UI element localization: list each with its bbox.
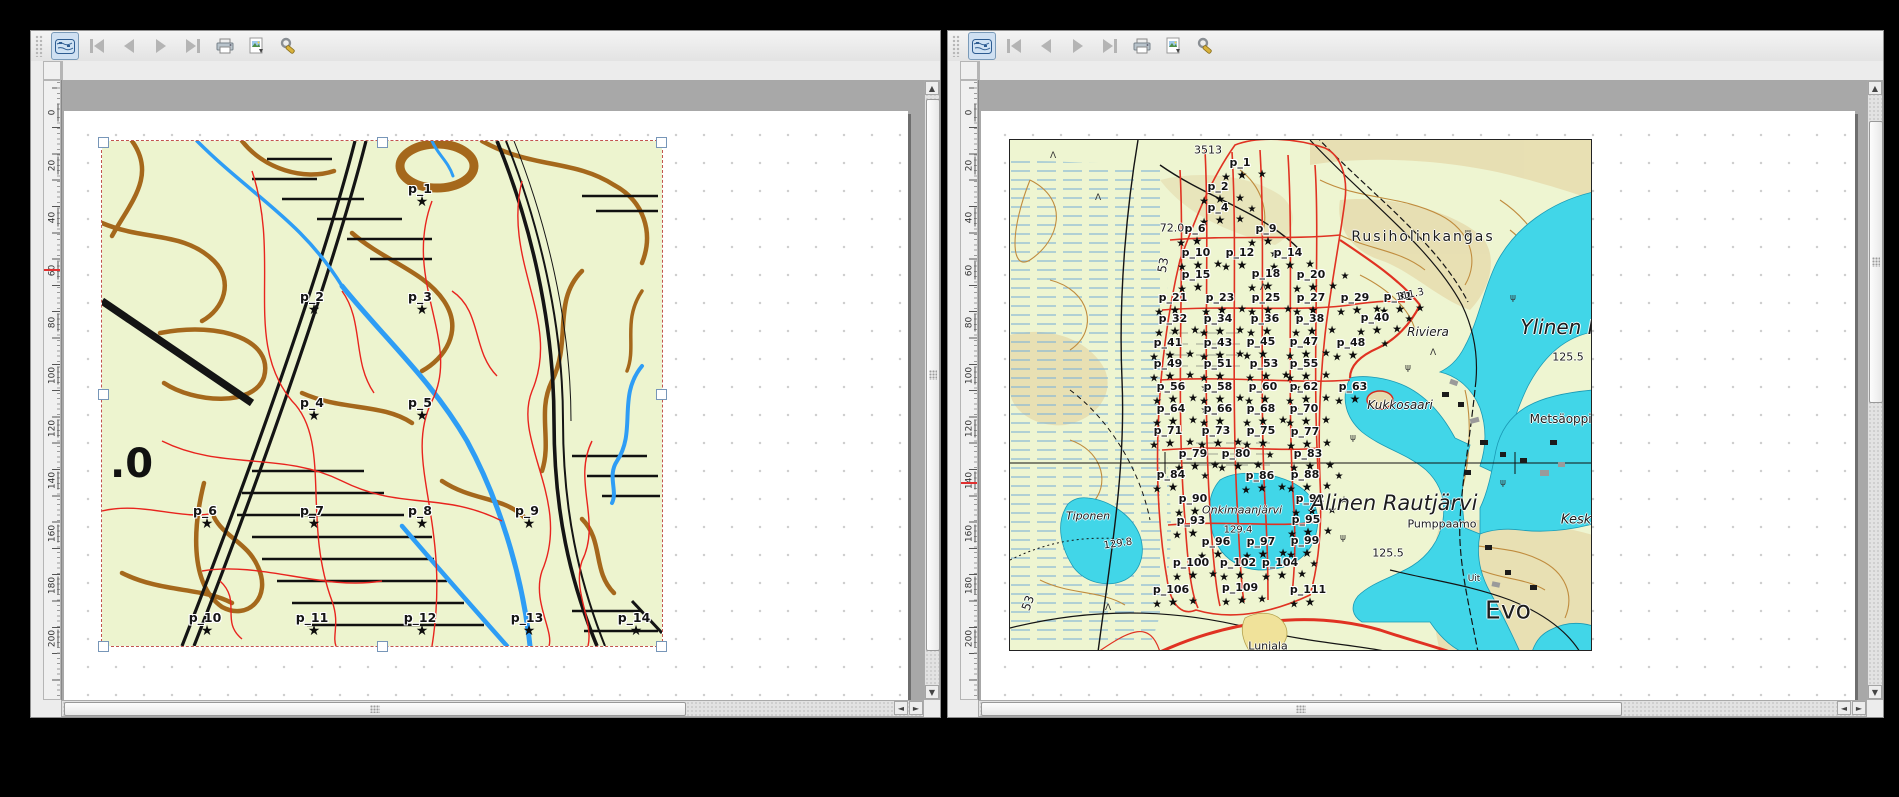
- point-star-marker: ★: [1201, 472, 1210, 482]
- map-place-label: 125.5: [1552, 351, 1584, 364]
- horizontal-scrollbar[interactable]: ◄ ►: [61, 700, 924, 717]
- horizontal-scrollbar[interactable]: ◄ ►: [978, 700, 1867, 717]
- point-star-marker: ★: [1321, 415, 1331, 426]
- vertical-scrollbar-thumb[interactable]: [926, 99, 940, 651]
- point-star-marker: ★: [1185, 349, 1195, 360]
- map-place-label: Onkimaanjärvi: [1202, 504, 1282, 517]
- v-ruler-tick: 160: [965, 524, 976, 542]
- page-settings-icon[interactable]: [275, 32, 303, 60]
- horizontal-ruler: 0204060801001201401601802002202402602803…: [61, 61, 63, 80]
- map-place-label: Riviera: [1407, 325, 1449, 339]
- map-place-label: Keskin: [1561, 513, 1592, 528]
- map-place-label: 72.0: [1160, 222, 1185, 235]
- map-place-label: Tiponen: [1066, 510, 1110, 523]
- vertical-scrollbar-thumb[interactable]: [1869, 121, 1883, 403]
- v-ruler-tick: 160: [48, 524, 59, 542]
- point-star-marker: ★: [1233, 460, 1244, 472]
- point-star-marker: ★: [523, 517, 536, 531]
- point-star-marker: ★: [1415, 303, 1425, 314]
- point-star-marker: ★: [1188, 393, 1198, 404]
- horizontal-scrollbar-thumb[interactable]: [64, 702, 686, 716]
- resize-handle-sw[interactable]: [98, 641, 109, 652]
- map-item[interactable]: p_1★p_2★p_3★p_4★p_5★p_6★p_7★p_8★p_9★p_10…: [102, 141, 662, 646]
- map-place-label: Lunjala: [1248, 640, 1287, 652]
- resize-handle-w[interactable]: [98, 389, 109, 400]
- export-image-icon[interactable]: [243, 32, 271, 60]
- composer-window-right: 0204060801001201401601802002202402602803…: [947, 30, 1884, 718]
- v-ruler-tick: 120: [965, 419, 976, 437]
- point-star-marker: ★: [1302, 547, 1313, 559]
- horizontal-scrollbar-thumb[interactable]: [981, 702, 1622, 716]
- v-ruler-tick: 60: [965, 261, 976, 279]
- point-star-marker: ★: [1168, 481, 1179, 493]
- point-star-marker: ★: [1289, 599, 1299, 610]
- resize-handle-n[interactable]: [377, 137, 388, 148]
- toolbar-drag-handle[interactable]: [952, 35, 960, 57]
- point-star-marker: ★: [1235, 569, 1246, 581]
- ruler-corner: [43, 61, 61, 80]
- point-star-marker: ★: [416, 517, 429, 531]
- composer-window-left: 0204060801001201401601802002202402602803…: [30, 30, 941, 718]
- v-ruler-tick: 100: [965, 367, 976, 385]
- point-star-marker: ★: [1217, 463, 1227, 474]
- v-ruler-tick: 200: [965, 630, 976, 648]
- point-star-marker: ★: [1168, 596, 1179, 608]
- v-ruler-tick: 0: [965, 104, 976, 122]
- v-ruler-tick: 100: [48, 367, 59, 385]
- point-star-marker: ★: [1185, 370, 1195, 381]
- point-star-marker: ★: [1235, 193, 1245, 204]
- v-ruler-tick: 180: [48, 577, 59, 595]
- point-star-marker: ★: [1172, 530, 1182, 541]
- point-star-marker: ★: [1172, 572, 1182, 583]
- point-star-marker: ★: [1277, 569, 1288, 581]
- paper-page: ΛΛΛ ΛΛψ ψψψ ψψψ p_1★★★p_2★★★p_4★★★★p_6★★…: [981, 111, 1855, 700]
- point-star-marker: ★: [1257, 594, 1267, 605]
- point-star-marker: ★: [1257, 169, 1267, 180]
- point-star-marker: ★: [1235, 325, 1245, 336]
- point-star-marker: ★: [1341, 272, 1350, 282]
- resize-handle-se[interactable]: [656, 641, 667, 652]
- go-last-icon[interactable]: [1096, 32, 1124, 60]
- v-ruler-tick: 80: [965, 314, 976, 332]
- point-star-marker: ★: [1328, 281, 1338, 292]
- point-star-marker: ★: [1237, 594, 1248, 606]
- point-star-marker: ★: [1325, 460, 1335, 471]
- point-star-marker: ★: [1336, 307, 1346, 318]
- sample-points-overlay: p_1★p_2★p_3★p_4★p_5★p_6★p_7★p_8★p_9★p_10…: [102, 141, 662, 646]
- scroll-up-icon[interactable]: ▲: [925, 81, 939, 95]
- v-ruler-tick: 200: [48, 630, 59, 648]
- vertical-scrollbar[interactable]: ▲ ▼: [1867, 80, 1883, 700]
- map-place-label: 129.4: [1224, 525, 1253, 536]
- scroll-right-icon[interactable]: ►: [909, 701, 923, 715]
- point-star-marker: ★: [1305, 596, 1316, 608]
- map-edge-label: .0: [110, 441, 153, 487]
- point-star-marker: ★: [1208, 569, 1218, 580]
- map-place-label: 125.5: [1372, 547, 1404, 560]
- point-star-marker: ★: [1321, 370, 1331, 381]
- ruler-corner: [960, 61, 978, 80]
- print-icon[interactable]: [211, 32, 239, 60]
- scroll-down-icon[interactable]: ▼: [925, 685, 939, 699]
- v-ruler-tick: 20: [965, 156, 976, 174]
- point-star-marker: ★: [1321, 393, 1331, 404]
- composer-map-icon[interactable]: [51, 32, 79, 60]
- point-star-marker: ★: [1350, 393, 1361, 405]
- point-star-marker: ★: [201, 624, 214, 638]
- map-place-label: Metsäoppila: [1530, 412, 1592, 426]
- paper-page: p_1★p_2★p_3★p_4★p_5★p_6★p_7★p_8★p_9★p_10…: [64, 111, 908, 700]
- point-star-marker: ★: [1152, 484, 1162, 495]
- go-next-icon[interactable]: [147, 32, 175, 60]
- point-star-marker: ★: [1322, 438, 1332, 449]
- map-place-label: 53: [1155, 256, 1171, 273]
- point-star-marker: ★: [1297, 569, 1307, 580]
- point-star-marker: ★: [308, 409, 321, 423]
- resize-handle-s[interactable]: [377, 641, 388, 652]
- point-star-marker: ★: [1323, 526, 1333, 537]
- point-star-marker: ★: [416, 303, 429, 317]
- point-star-marker: ★: [1241, 485, 1251, 496]
- go-first-icon[interactable]: [1000, 32, 1028, 60]
- point-star-marker: ★: [1332, 352, 1342, 363]
- resize-handle-e[interactable]: [656, 389, 667, 400]
- point-star-marker: ★: [1190, 460, 1201, 472]
- v-ruler-tick: 0: [48, 104, 59, 122]
- point-star-marker: ★: [1193, 281, 1204, 293]
- toolbar-drag-handle[interactable]: [35, 35, 43, 57]
- map-place-label: Uit: [1468, 574, 1481, 584]
- scroll-down-icon[interactable]: ▼: [1868, 685, 1882, 699]
- map-place-label: Pumppaamo: [1407, 518, 1476, 531]
- scroll-up-icon[interactable]: ▲: [1868, 81, 1882, 95]
- resize-handle-ne[interactable]: [656, 137, 667, 148]
- point-star-marker: ★: [523, 624, 536, 638]
- map-place-label: 3513: [1194, 144, 1222, 157]
- point-star-marker: ★: [1188, 569, 1199, 581]
- point-star-marker: ★: [1310, 560, 1319, 570]
- point-star-marker: ★: [1215, 214, 1226, 226]
- desktop: 0204060801001201401601802002202402602803…: [0, 0, 1899, 797]
- map-place-label: 53: [1019, 593, 1037, 612]
- point-star-marker: ★: [1149, 440, 1159, 451]
- point-star-marker: ★: [1221, 262, 1231, 273]
- v-ruler-tick: 180: [965, 577, 976, 595]
- vertical-ruler: 020406080100120140160180200: [43, 80, 61, 700]
- point-star-marker: ★: [1165, 437, 1176, 449]
- composition-canvas[interactable]: ΛΛΛ ΛΛψ ψψψ ψψψ p_1★★★p_2★★★p_4★★★★p_6★★…: [978, 80, 1867, 700]
- map-place-label: Kukkosaari: [1367, 398, 1433, 412]
- point-star-marker: ★: [1335, 472, 1344, 482]
- map-place-label: Rusiholinkangas: [1351, 229, 1494, 245]
- cursor-position-marker: [44, 269, 60, 271]
- point-star-marker: ★: [1285, 259, 1296, 271]
- scroll-left-icon[interactable]: ◄: [1837, 701, 1851, 715]
- composer-toolbar: [948, 31, 1883, 61]
- point-star-marker: ★: [1392, 324, 1402, 335]
- point-star-marker: ★: [308, 624, 321, 638]
- point-star-marker: ★: [1327, 325, 1337, 336]
- point-star-marker: ★: [1263, 235, 1274, 247]
- point-star-marker: ★: [1322, 481, 1332, 492]
- map-place-label: Evo: [1485, 596, 1531, 625]
- point-star-marker: ★: [1405, 315, 1414, 325]
- scroll-right-icon[interactable]: ►: [1852, 701, 1866, 715]
- point-star-marker: ★: [1185, 437, 1195, 448]
- point-star-marker: ★: [308, 303, 321, 317]
- v-ruler-tick: 20: [48, 156, 59, 174]
- export-image-icon[interactable]: [1160, 32, 1188, 60]
- point-star-marker: ★: [1381, 340, 1390, 350]
- point-star-marker: ★: [308, 517, 321, 531]
- point-star-marker: ★: [416, 624, 429, 638]
- point-star-marker: ★: [1221, 597, 1231, 608]
- v-ruler-tick: 40: [48, 209, 59, 227]
- sample-points-overlay: p_1★★★p_2★★★p_4★★★★p_6★★p_9★★p_10★★★p_12…: [1010, 140, 1591, 650]
- page-settings-icon[interactable]: [1192, 32, 1220, 60]
- point-star-marker: ★: [630, 624, 643, 638]
- go-previous-icon[interactable]: [115, 32, 143, 60]
- vertical-ruler: 020406080100120140160180200: [960, 80, 978, 700]
- scroll-left-icon[interactable]: ◄: [894, 701, 908, 715]
- point-star-marker: ★: [1188, 527, 1199, 539]
- go-first-icon[interactable]: [83, 32, 111, 60]
- composer-toolbar: [31, 31, 940, 61]
- point-star-marker: ★: [1237, 169, 1248, 181]
- point-star-marker: ★: [1261, 572, 1271, 583]
- composer-map-icon[interactable]: [968, 32, 996, 60]
- horizontal-ruler: 0204060801001201401601802002202402602803…: [978, 61, 980, 80]
- v-ruler-tick: 40: [965, 209, 976, 227]
- v-ruler-tick: 140: [965, 472, 976, 490]
- point-star-marker: ★: [1235, 214, 1245, 225]
- v-ruler-tick: 140: [48, 472, 59, 490]
- point-star-marker: ★: [1188, 415, 1198, 426]
- v-ruler-tick: 120: [48, 419, 59, 437]
- point-star-marker: ★: [1266, 451, 1275, 461]
- map-place-label: 129.8: [1103, 537, 1133, 552]
- point-star-marker: ★: [1237, 259, 1248, 271]
- point-star-marker: ★: [1286, 484, 1296, 495]
- map-place-label: Alinen Rautjärvi: [1311, 491, 1478, 515]
- point-star-marker: ★: [416, 409, 429, 423]
- map-item[interactable]: ΛΛΛ ΛΛψ ψψψ ψψψ p_1★★★p_2★★★p_4★★★★p_6★★…: [1009, 139, 1592, 651]
- v-ruler-tick: 80: [48, 314, 59, 332]
- point-star-marker: ★: [1321, 348, 1331, 359]
- print-icon[interactable]: [1128, 32, 1156, 60]
- resize-handle-nw[interactable]: [98, 137, 109, 148]
- point-star-marker: ★: [1258, 437, 1269, 449]
- point-star-marker: ★: [1257, 482, 1268, 494]
- point-star-marker: ★: [1248, 205, 1257, 215]
- point-star-marker: ★: [1372, 324, 1383, 336]
- cursor-position-marker: [961, 482, 977, 484]
- go-previous-icon[interactable]: [1032, 32, 1060, 60]
- point-star-marker: ★: [1334, 396, 1344, 407]
- map-place-label: Ylinen R: [1520, 315, 1592, 339]
- go-last-icon[interactable]: [179, 32, 207, 60]
- composition-canvas[interactable]: p_1★p_2★p_3★p_4★p_5★p_6★p_7★p_8★p_9★p_10…: [61, 80, 924, 700]
- vertical-scrollbar[interactable]: ▲ ▼: [924, 80, 940, 700]
- go-next-icon[interactable]: [1064, 32, 1092, 60]
- point-star-marker: ★: [201, 517, 214, 531]
- point-star-marker: ★: [1237, 304, 1247, 315]
- point-star-marker: ★: [1348, 349, 1359, 361]
- point-star-marker: ★: [416, 195, 429, 209]
- point-star-marker: ★: [1188, 596, 1198, 607]
- point-star-marker: ★: [1152, 599, 1162, 610]
